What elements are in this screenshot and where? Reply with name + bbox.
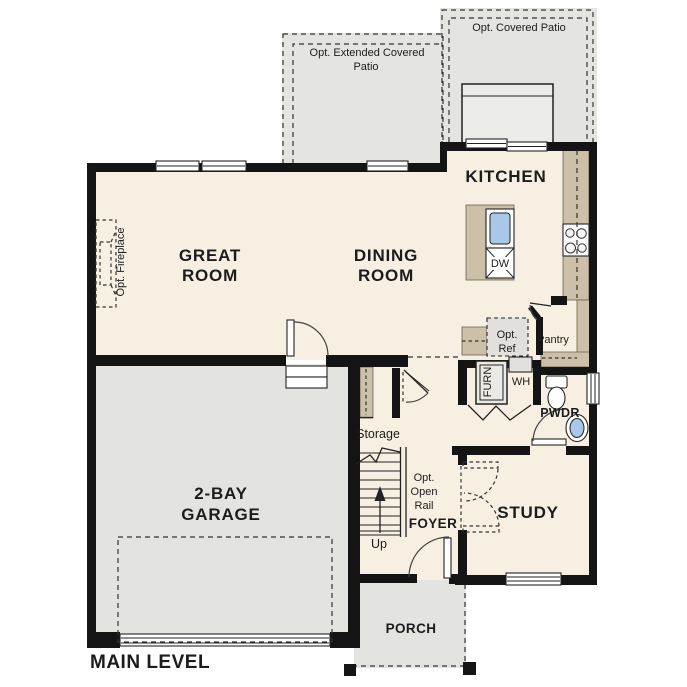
cooktop [563,224,589,256]
opt-ref-label: Opt. [497,329,518,341]
porch-post-left [344,664,356,676]
dishwasher-label: DW [491,258,510,270]
fireplace-label: Opt. Fireplace [115,227,127,296]
patio-landing [462,84,553,143]
pantry-label: Pantry [537,334,569,346]
up-label: Up [371,537,387,551]
garage-step [286,377,327,388]
dining-patio-door [367,161,408,171]
garage-door [120,634,330,646]
pantry-shelf-bottom [541,352,591,367]
floor-plan-drawing: GREAT ROOM DINING ROOM KITCHEN 2-BAY GAR… [0,0,687,687]
porch-post-right [463,662,476,675]
dining-room-label: DINING [354,246,418,265]
garage-step [286,366,327,377]
water-heater [509,357,532,372]
floor-plan: GREAT ROOM DINING ROOM KITCHEN 2-BAY GAR… [0,0,687,687]
extended-patio-label: Patio [353,61,378,73]
garage-label: GARAGE [181,505,260,524]
furnace-label: FURN [482,367,494,398]
toilet [546,376,567,409]
great-room-label: ROOM [182,266,238,285]
extended-patio-label: Opt. Extended Covered [310,47,425,59]
study-window [506,573,561,585]
island-sink [486,209,514,248]
porch-label: PORCH [386,621,437,636]
kitchen-label: KITCHEN [465,167,546,186]
open-rail-label: Opt. [414,472,435,484]
open-rail-label: Rail [415,500,434,512]
opt-ref-label: Ref [498,343,516,355]
open-rail-label: Open [411,486,438,498]
study-label: STUDY [497,503,559,522]
water-heater-label: WH [512,376,530,388]
storage-label: Storage [356,427,400,441]
foyer-label: FOYER [409,516,458,531]
great-room-label: GREAT [179,246,241,265]
garage-label: 2-BAY [194,484,247,503]
plan-title: MAIN LEVEL [90,652,210,673]
great-room-window-2 [202,161,246,171]
great-room-window-1 [156,161,199,171]
powder-label: PWDR [540,406,579,420]
dining-room-label: ROOM [358,266,414,285]
powder-window [587,373,599,404]
covered-patio-label: Opt. Covered Patio [472,22,566,34]
